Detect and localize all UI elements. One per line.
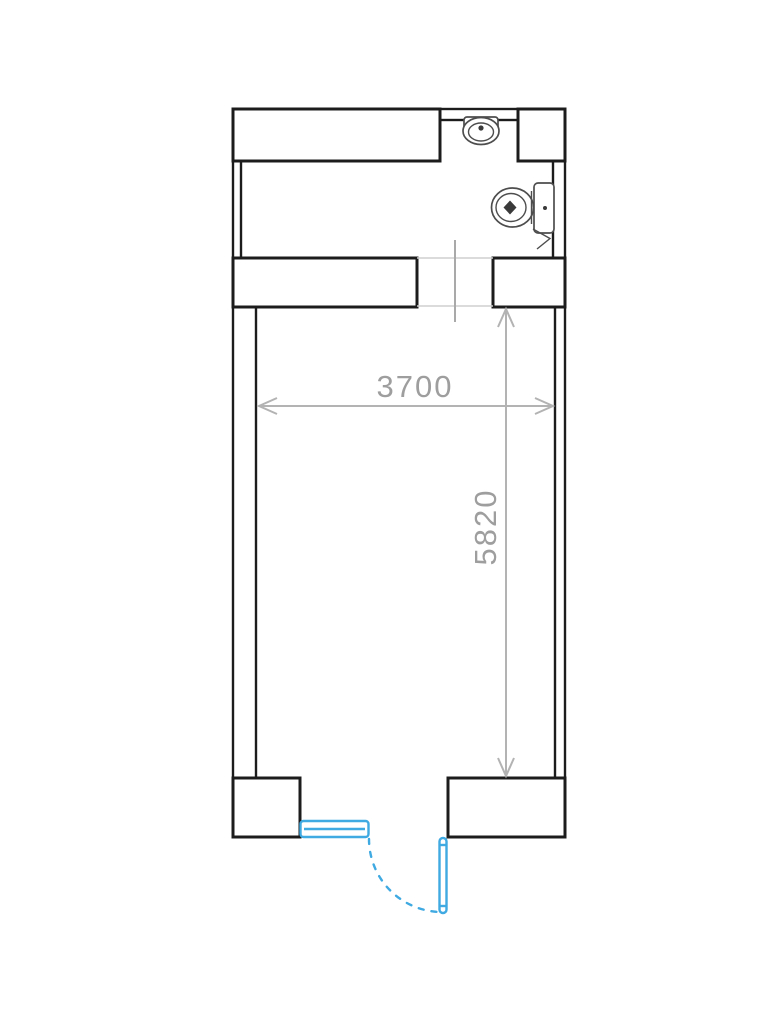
wall-bottom-right-block: [448, 778, 565, 837]
wall-lower-right: [555, 307, 565, 778]
floor-plan-canvas: 3700 5820: [0, 0, 783, 1024]
wall-mid-right-block: [493, 258, 565, 307]
wall-upper-left: [233, 161, 241, 258]
interior-opening: [417, 240, 493, 322]
toilet-icon[interactable]: [492, 183, 555, 233]
wall-top-band: [233, 109, 440, 161]
sink-icon[interactable]: [463, 117, 499, 145]
dimension-width-label: 3700: [377, 369, 454, 404]
floor-plan-page: 3700 5820: [0, 0, 783, 1024]
sliding-panel[interactable]: [301, 821, 369, 837]
dimension-height: 5820: [468, 309, 514, 776]
wall-bottom-left-block: [233, 778, 300, 837]
wall-lower-left: [233, 307, 256, 778]
dimension-height-label: 5820: [468, 489, 503, 566]
sink-faucet-dot: [478, 125, 483, 130]
entry-door[interactable]: [301, 821, 447, 913]
wall-mid-left-band: [233, 258, 417, 307]
wall-top-right-block: [518, 109, 565, 161]
door-swing-arc: [369, 839, 442, 912]
dimension-width: 3700: [259, 369, 553, 414]
door-leaf[interactable]: [440, 838, 447, 913]
door-leaf-panel: [440, 838, 447, 913]
toilet-tank-dot: [543, 206, 547, 210]
